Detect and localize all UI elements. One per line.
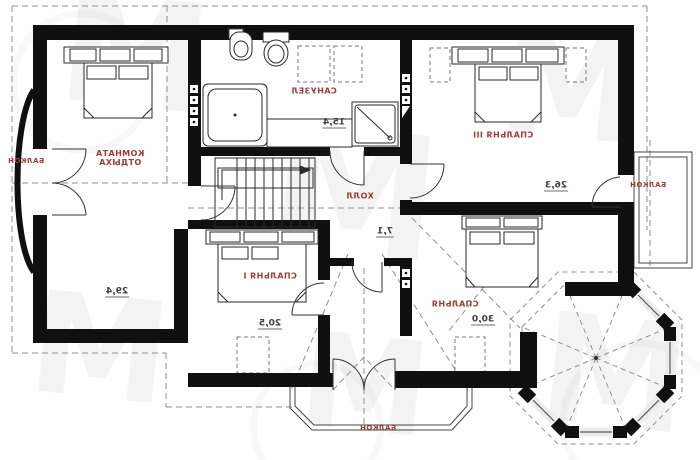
room-area-bathroom: 15,4 [322,118,346,129]
bed-bedroom2 [462,216,542,287]
staircase [215,158,315,227]
floor-plan-page: М М М М М М [0,0,700,460]
room-area-rest: 29,4 [105,287,129,298]
balcony-label-left: БАЛКОН [8,157,45,165]
balcony-left-outline [18,90,35,272]
room-label-hall: ХОЛЛ [346,192,374,201]
bed-bedroom1 [206,230,318,302]
room-area-bedroom1: 20,5 [258,319,282,330]
room-label-rest-line1: КОМНАТА [96,149,145,158]
toilet [263,32,289,66]
balcony-label-right: БАЛКОН [630,181,667,189]
room-area-bedroom2: 30,0 [471,315,495,326]
bed-bedroom3 [452,47,564,122]
bed-rest-room [64,47,168,118]
room-area-bedroom3: 26,3 [544,181,568,192]
balcony-right-outline [634,152,692,268]
room-label-bedroom2: СПАЛЬНЯ [431,300,478,309]
room-label-bathroom: САНУЗЕЛ [291,87,337,96]
turret-windows [533,295,670,432]
room-label-bedroom1: СПАЛЬНЯ I [243,272,297,281]
bidet [230,32,252,60]
bathtub [203,84,267,146]
shower-tray [352,102,398,146]
floor-plan-drawing [0,0,700,460]
balcony-label-bottom: БАЛКОН [360,424,397,432]
room-label-rest: КОМНАТА ОТДЫХА [96,149,145,167]
room-label-bedroom3: СПАЛЬНЯ III [473,131,533,140]
room-label-rest-line2: ОТДЫХА [96,158,145,167]
room-area-hall: 7,1 [376,227,394,238]
